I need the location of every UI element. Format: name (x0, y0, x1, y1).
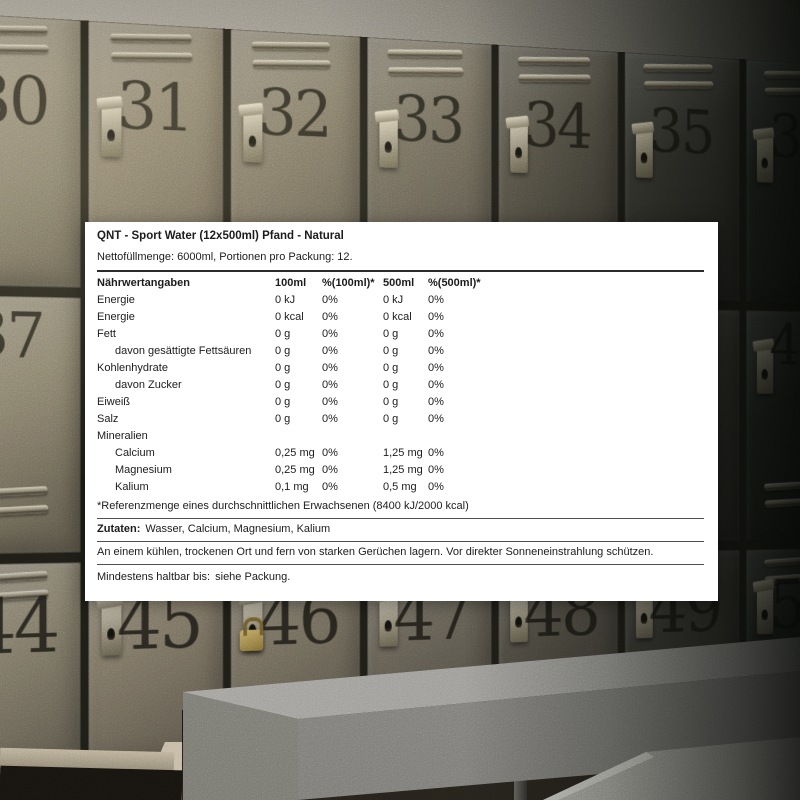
table-cell-p100: 0% (322, 445, 383, 462)
vent-slots-icon (0, 25, 49, 64)
table-cell-v500: 1,25 mg (383, 445, 428, 462)
table-cell-v500: 0 g (383, 360, 428, 377)
vent-slots-icon (764, 480, 800, 517)
table-row: Magnesium0,25 mg0%1,25 mg0% (97, 462, 704, 479)
vent-slots-icon (643, 64, 713, 98)
col-header-pct-100ml: %(100ml)* (322, 274, 383, 292)
col-header-100ml: 100ml (275, 274, 322, 292)
table-cell-v500: 0,5 mg (383, 479, 428, 496)
table-cell-v100: 0,25 mg (275, 445, 322, 462)
table-cell-p500: 0% (428, 411, 704, 428)
table-cell-label: Kalium (97, 479, 275, 496)
locker-number: 43 (769, 318, 800, 375)
table-cell-p500: 0% (428, 343, 704, 360)
table-cell-p100: 0% (322, 411, 383, 428)
best-before-value: siehe Packung. (215, 571, 290, 583)
table-cell-p500: 0% (428, 394, 704, 411)
locker-door-44: 44 (0, 562, 81, 777)
table-cell-p100: 0% (322, 360, 383, 377)
col-header-500ml: 500ml (383, 274, 428, 292)
table-cell-p100: 0% (322, 309, 383, 326)
table-row: Salz0 g0%0 g0% (97, 411, 704, 428)
vent-slots-icon (764, 71, 800, 105)
locker-number: 33 (393, 87, 462, 154)
nutrition-label-panel: QNT - Sport Water (12x500ml) Pfand - Nat… (85, 222, 718, 601)
vent-slots-icon (252, 42, 331, 79)
vent-slots-icon (518, 57, 591, 92)
best-before-line: Mindestens haltbar bis:siehe Packung. (97, 565, 704, 585)
table-cell-p100: 0% (322, 394, 383, 411)
table-cell-v100: 0 g (275, 343, 322, 360)
table-cell-label: Kohlenhydrate (97, 360, 275, 377)
table-cell-v500: 0 g (383, 377, 428, 394)
locker-door-37: 37 (0, 295, 81, 555)
table-cell-p500: 0% (428, 360, 704, 377)
table-cell-v500: 1,25 mg (383, 462, 428, 479)
table-row: Kohlenhydrate0 g0%0 g0% (97, 360, 704, 377)
table-row: Eiweiß0 g0%0 g0% (97, 394, 704, 411)
table-cell-v100: 0 g (275, 326, 322, 343)
table-row: davon Zucker0 g0%0 g0% (97, 377, 704, 394)
table-cell-v100: 0,25 mg (275, 462, 322, 479)
table-cell-v500: 0 kcal (383, 309, 428, 326)
locker-door-36: 36 (746, 59, 800, 303)
table-cell-p100: 0% (322, 292, 383, 309)
padlock-icon (240, 630, 264, 652)
table-cell-p500: 0% (428, 445, 704, 462)
table-cell-p500: 0% (428, 292, 704, 309)
reference-note: *Referenzmenge eines durchschnittlichen … (97, 499, 704, 519)
table-cell-label: Mineralien (97, 428, 275, 445)
locker-number: 34 (524, 94, 591, 159)
table-row: Energie0 kcal0%0 kcal0% (97, 309, 704, 326)
locker-door-43: 43 (746, 310, 800, 541)
table-header-row: Nährwertangaben 100ml %(100ml)* 500ml %(… (97, 274, 704, 292)
ingredients-line: Zutaten:Wasser, Calcium, Magnesium, Kali… (97, 519, 704, 542)
locker-number: 32 (258, 80, 330, 148)
table-cell-v500: 0 g (383, 326, 428, 343)
locker-number: 35 (649, 100, 713, 164)
table-cell-p500: 0% (428, 462, 704, 479)
table-cell-v500 (383, 428, 428, 445)
table-row: Calcium0,25 mg0%1,25 mg0% (97, 445, 704, 462)
table-cell-p500: 0% (428, 377, 704, 394)
table-cell-p500: 0% (428, 326, 704, 343)
locker-number: 36 (769, 107, 800, 170)
locker-number: 50 (769, 571, 800, 640)
table-row: Energie0 kJ0%0 kJ0% (97, 292, 704, 309)
table-cell-v100: 0 g (275, 411, 322, 428)
table-cell-p500: 0% (428, 479, 704, 496)
storage-note: An einem kühlen, trockenen Ort und fern … (97, 542, 704, 565)
table-cell-label: davon gesättigte Fettsäuren (97, 343, 275, 360)
nutrition-table: Nährwertangaben 100ml %(100ml)* 500ml %(… (97, 274, 704, 496)
table-cell-v500: 0 g (383, 411, 428, 428)
vent-slots-icon (0, 486, 49, 528)
locker-number: 44 (0, 588, 58, 666)
table-cell-label: Energie (97, 309, 275, 326)
table-cell-p100: 0% (322, 326, 383, 343)
vent-slots-icon (387, 49, 463, 85)
table-row: Fett0 g0%0 g0% (97, 326, 704, 343)
table-cell-v100: 0 g (275, 360, 322, 377)
table-cell-v100 (275, 428, 322, 445)
table-cell-v100: 0 kcal (275, 309, 322, 326)
locker-door-30: 30 (0, 12, 81, 288)
table-cell-label: davon Zucker (97, 377, 275, 394)
table-cell-label: Fett (97, 326, 275, 343)
table-cell-v500: 0 g (383, 394, 428, 411)
table-cell-v100: 0 g (275, 394, 322, 411)
table-cell-label: Magnesium (97, 462, 275, 479)
ingredients-label: Zutaten: (97, 523, 140, 535)
ingredients-value: Wasser, Calcium, Magnesium, Kalium (145, 523, 330, 535)
table-body: Energie0 kJ0%0 kJ0%Energie0 kcal0%0 kcal… (97, 292, 704, 496)
locker-base-shadow (0, 766, 182, 800)
table-cell-v500: 0 kJ (383, 292, 428, 309)
locker-room-scene: 3031323334353637383940414243444546474849… (0, 0, 800, 800)
table-cell-p100: 0% (322, 462, 383, 479)
table-cell-p100: 0% (322, 479, 383, 496)
best-before-label: Mindestens haltbar bis: (97, 571, 210, 583)
table-cell-p500 (428, 428, 704, 445)
table-cell-p100: 0% (322, 377, 383, 394)
table-cell-v100: 0,1 mg (275, 479, 322, 496)
table-cell-v100: 0 kJ (275, 292, 322, 309)
table-cell-p100: 0% (322, 343, 383, 360)
table-row: Mineralien (97, 428, 704, 445)
locker-number: 30 (0, 66, 48, 137)
net-content-line: Nettofüllmenge: 6000ml, Portionen pro Pa… (97, 250, 704, 272)
vent-slots-icon (110, 34, 193, 72)
table-cell-label: Eiweiß (97, 394, 275, 411)
locker-number: 31 (117, 73, 192, 142)
table-cell-v100: 0 g (275, 377, 322, 394)
col-header-nutrients: Nährwertangaben (97, 274, 275, 292)
table-cell-label: Salz (97, 411, 275, 428)
product-title: QNT - Sport Water (12x500ml) Pfand - Nat… (97, 229, 704, 244)
table-cell-v500: 0 g (383, 343, 428, 360)
table-row: davon gesättigte Fettsäuren0 g0%0 g0% (97, 343, 704, 360)
table-cell-p500: 0% (428, 309, 704, 326)
table-cell-p100 (322, 428, 383, 445)
table-cell-label: Energie (97, 292, 275, 309)
table-cell-label: Calcium (97, 445, 275, 462)
col-header-pct-500ml: %(500ml)* (428, 274, 704, 292)
locker-number: 37 (0, 304, 43, 368)
table-row: Kalium0,1 mg0%0,5 mg0% (97, 479, 704, 496)
